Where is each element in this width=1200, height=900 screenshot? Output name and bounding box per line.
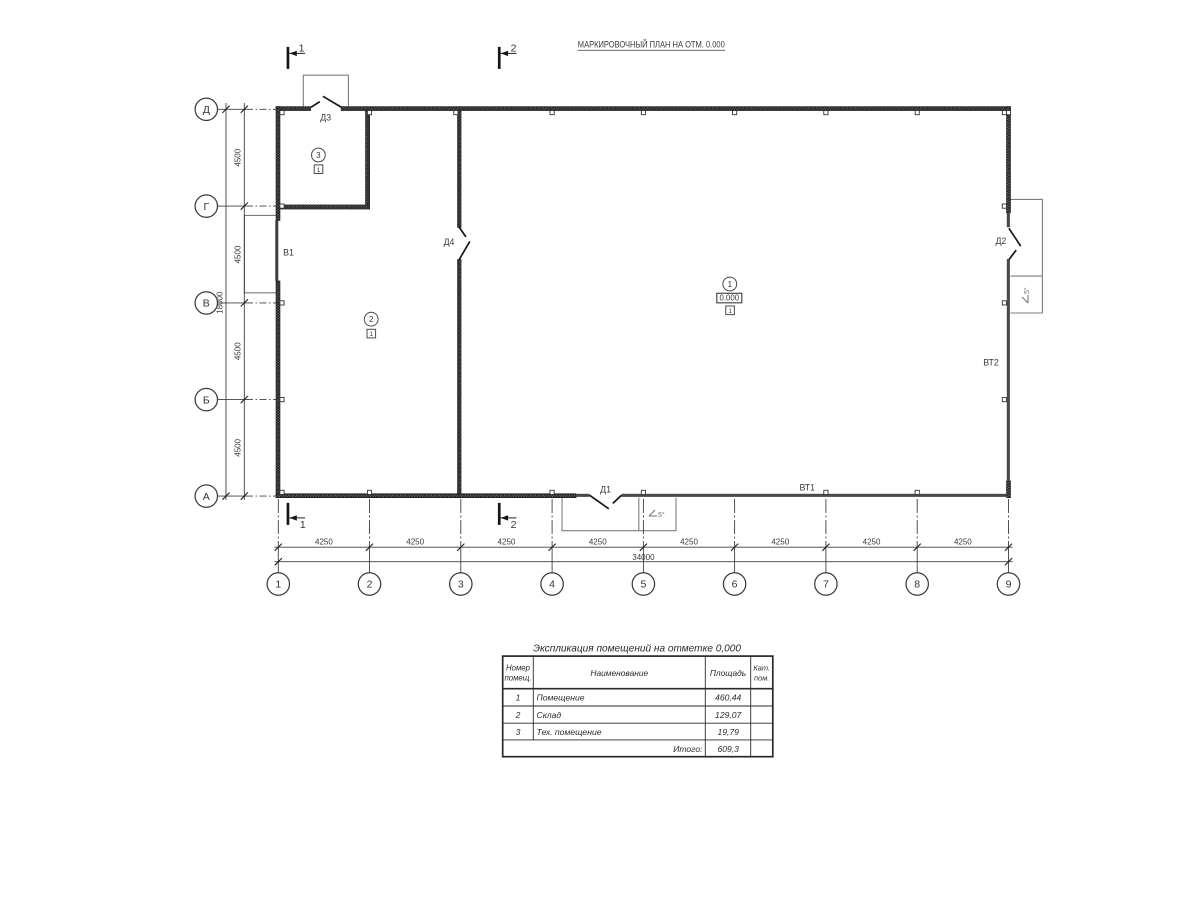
- svg-text:2: 2: [367, 579, 373, 591]
- svg-text:6: 6: [732, 579, 738, 591]
- svg-text:4250: 4250: [863, 537, 881, 546]
- svg-text:Номер: Номер: [506, 664, 531, 673]
- svg-text:3: 3: [458, 579, 464, 591]
- svg-text:5°: 5°: [658, 511, 665, 519]
- svg-text:1: 1: [728, 308, 732, 315]
- svg-text:34000: 34000: [632, 553, 655, 562]
- svg-text:2: 2: [511, 43, 517, 55]
- svg-text:Тех. помещение: Тех. помещение: [537, 727, 602, 737]
- svg-text:Кат.: Кат.: [753, 664, 770, 673]
- svg-text:4: 4: [549, 579, 555, 591]
- svg-text:460,44: 460,44: [715, 693, 742, 703]
- svg-text:3: 3: [516, 727, 521, 737]
- svg-text:Наименование: Наименование: [590, 668, 648, 678]
- svg-text:4250: 4250: [954, 537, 972, 546]
- svg-text:А: А: [203, 491, 210, 503]
- svg-text:5°: 5°: [1023, 287, 1031, 294]
- svg-text:609,3: 609,3: [717, 744, 739, 754]
- svg-text:ВТ2: ВТ2: [983, 357, 999, 367]
- svg-text:4500: 4500: [234, 245, 243, 263]
- svg-text:1: 1: [299, 43, 305, 55]
- svg-text:1: 1: [370, 331, 374, 338]
- svg-text:5: 5: [640, 579, 646, 591]
- svg-text:ВТ1: ВТ1: [800, 482, 816, 492]
- svg-text:9: 9: [1006, 579, 1012, 591]
- svg-text:2: 2: [511, 519, 517, 531]
- svg-text:Склад: Склад: [537, 710, 562, 720]
- svg-text:Д: Д: [203, 104, 210, 116]
- svg-text:8: 8: [914, 579, 920, 591]
- svg-text:4500: 4500: [234, 148, 243, 166]
- svg-text:129,07: 129,07: [715, 710, 743, 720]
- svg-text:4250: 4250: [498, 537, 516, 546]
- svg-text:4250: 4250: [406, 537, 424, 546]
- svg-text:Д1: Д1: [600, 484, 611, 494]
- svg-text:МАРКИРОВОЧНЫЙ ПЛАН НА ОТМ. 0.0: МАРКИРОВОЧНЫЙ ПЛАН НА ОТМ. 0.000: [578, 39, 725, 50]
- svg-text:2: 2: [515, 710, 521, 720]
- svg-text:Помещение: Помещение: [537, 693, 585, 703]
- svg-text:1: 1: [516, 693, 521, 703]
- svg-text:1: 1: [300, 519, 306, 531]
- svg-text:помещ.: помещ.: [504, 674, 531, 683]
- svg-text:Итого:: Итого:: [673, 744, 703, 754]
- svg-text:В: В: [203, 298, 210, 310]
- svg-text:7: 7: [823, 579, 829, 591]
- svg-text:1: 1: [317, 167, 321, 174]
- svg-text:1: 1: [275, 579, 281, 591]
- svg-text:В1: В1: [283, 247, 294, 257]
- svg-text:Площадь: Площадь: [710, 668, 746, 678]
- svg-text:1: 1: [728, 280, 733, 289]
- svg-text:4500: 4500: [234, 438, 243, 456]
- svg-text:4250: 4250: [589, 537, 607, 546]
- svg-text:Д3: Д3: [320, 113, 331, 123]
- svg-text:Г: Г: [203, 201, 209, 213]
- svg-text:4250: 4250: [771, 537, 789, 546]
- svg-text:4250: 4250: [680, 537, 698, 546]
- svg-text:4500: 4500: [234, 342, 243, 360]
- svg-text:3: 3: [316, 151, 321, 160]
- svg-text:4250: 4250: [315, 537, 333, 546]
- svg-text:19,79: 19,79: [717, 727, 739, 737]
- svg-text:Д2: Д2: [995, 236, 1006, 246]
- svg-text:пом.: пом.: [754, 674, 769, 683]
- svg-text:0.000: 0.000: [720, 294, 740, 303]
- svg-text:Экспликация помещений на отмет: Экспликация помещений на отметке 0,000: [533, 642, 741, 654]
- svg-text:2: 2: [369, 315, 374, 324]
- svg-text:Д4: Д4: [444, 237, 455, 247]
- svg-text:Б: Б: [203, 394, 210, 406]
